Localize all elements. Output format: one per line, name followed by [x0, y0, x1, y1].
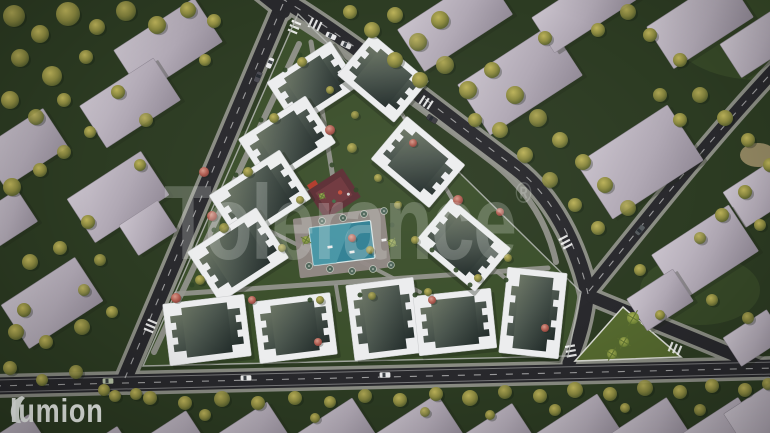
- lumion-logo: lumion: [6, 394, 124, 427]
- lumion-wordmark: lumion: [10, 394, 104, 427]
- aerial-render: Tolerance® lumion: [0, 0, 770, 433]
- site-plan-svg: [0, 0, 770, 433]
